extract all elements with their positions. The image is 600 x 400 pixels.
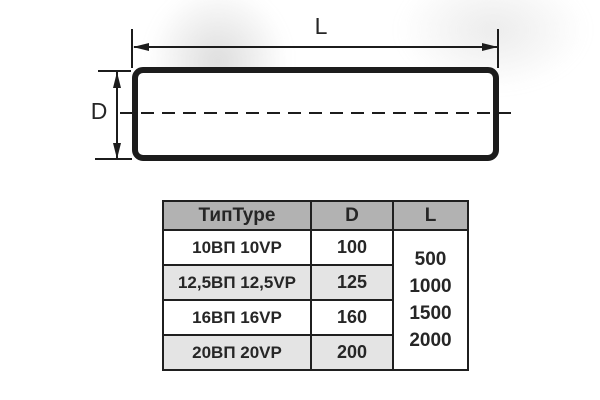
- duct-body: [132, 67, 499, 161]
- diameter-label: D: [86, 98, 112, 125]
- table-row: 10ВП 10VP 100 500 1000 1500 2000: [163, 230, 468, 265]
- table-header-type: ТипType: [163, 201, 311, 230]
- cell-type: 20ВП 20VP: [163, 335, 311, 370]
- duct-centerline: [120, 112, 514, 114]
- cell-type: 16ВП 16VP: [163, 300, 311, 335]
- cell-l-merged: 500 1000 1500 2000: [393, 230, 468, 370]
- cell-d: 125: [311, 265, 393, 300]
- table-header-l: L: [393, 201, 468, 230]
- cell-d: 200: [311, 335, 393, 370]
- diameter-arrowhead-up-icon: [113, 72, 121, 88]
- cell-type: 10ВП 10VP: [163, 230, 311, 265]
- length-arrowhead-right-icon: [482, 43, 498, 51]
- cell-d: 100: [311, 230, 393, 265]
- l-value: 2000: [394, 327, 467, 354]
- l-value: 1000: [394, 273, 467, 300]
- l-value: 500: [394, 246, 467, 273]
- table-header-d: D: [311, 201, 393, 230]
- l-value: 1500: [394, 300, 467, 327]
- length-label: L: [306, 13, 336, 40]
- length-dimension-line: [134, 46, 497, 48]
- diameter-arrowhead-down-icon: [113, 143, 121, 159]
- table-header-row: ТипType D L: [163, 201, 468, 230]
- cell-d: 160: [311, 300, 393, 335]
- cell-type: 12,5ВП 12,5VP: [163, 265, 311, 300]
- length-arrowhead-left-icon: [133, 43, 149, 51]
- page: L D ТипType D L 10ВП 10VP 100 500: [0, 0, 600, 400]
- spec-table: ТипType D L 10ВП 10VP 100 500 1000 1500 …: [162, 200, 469, 371]
